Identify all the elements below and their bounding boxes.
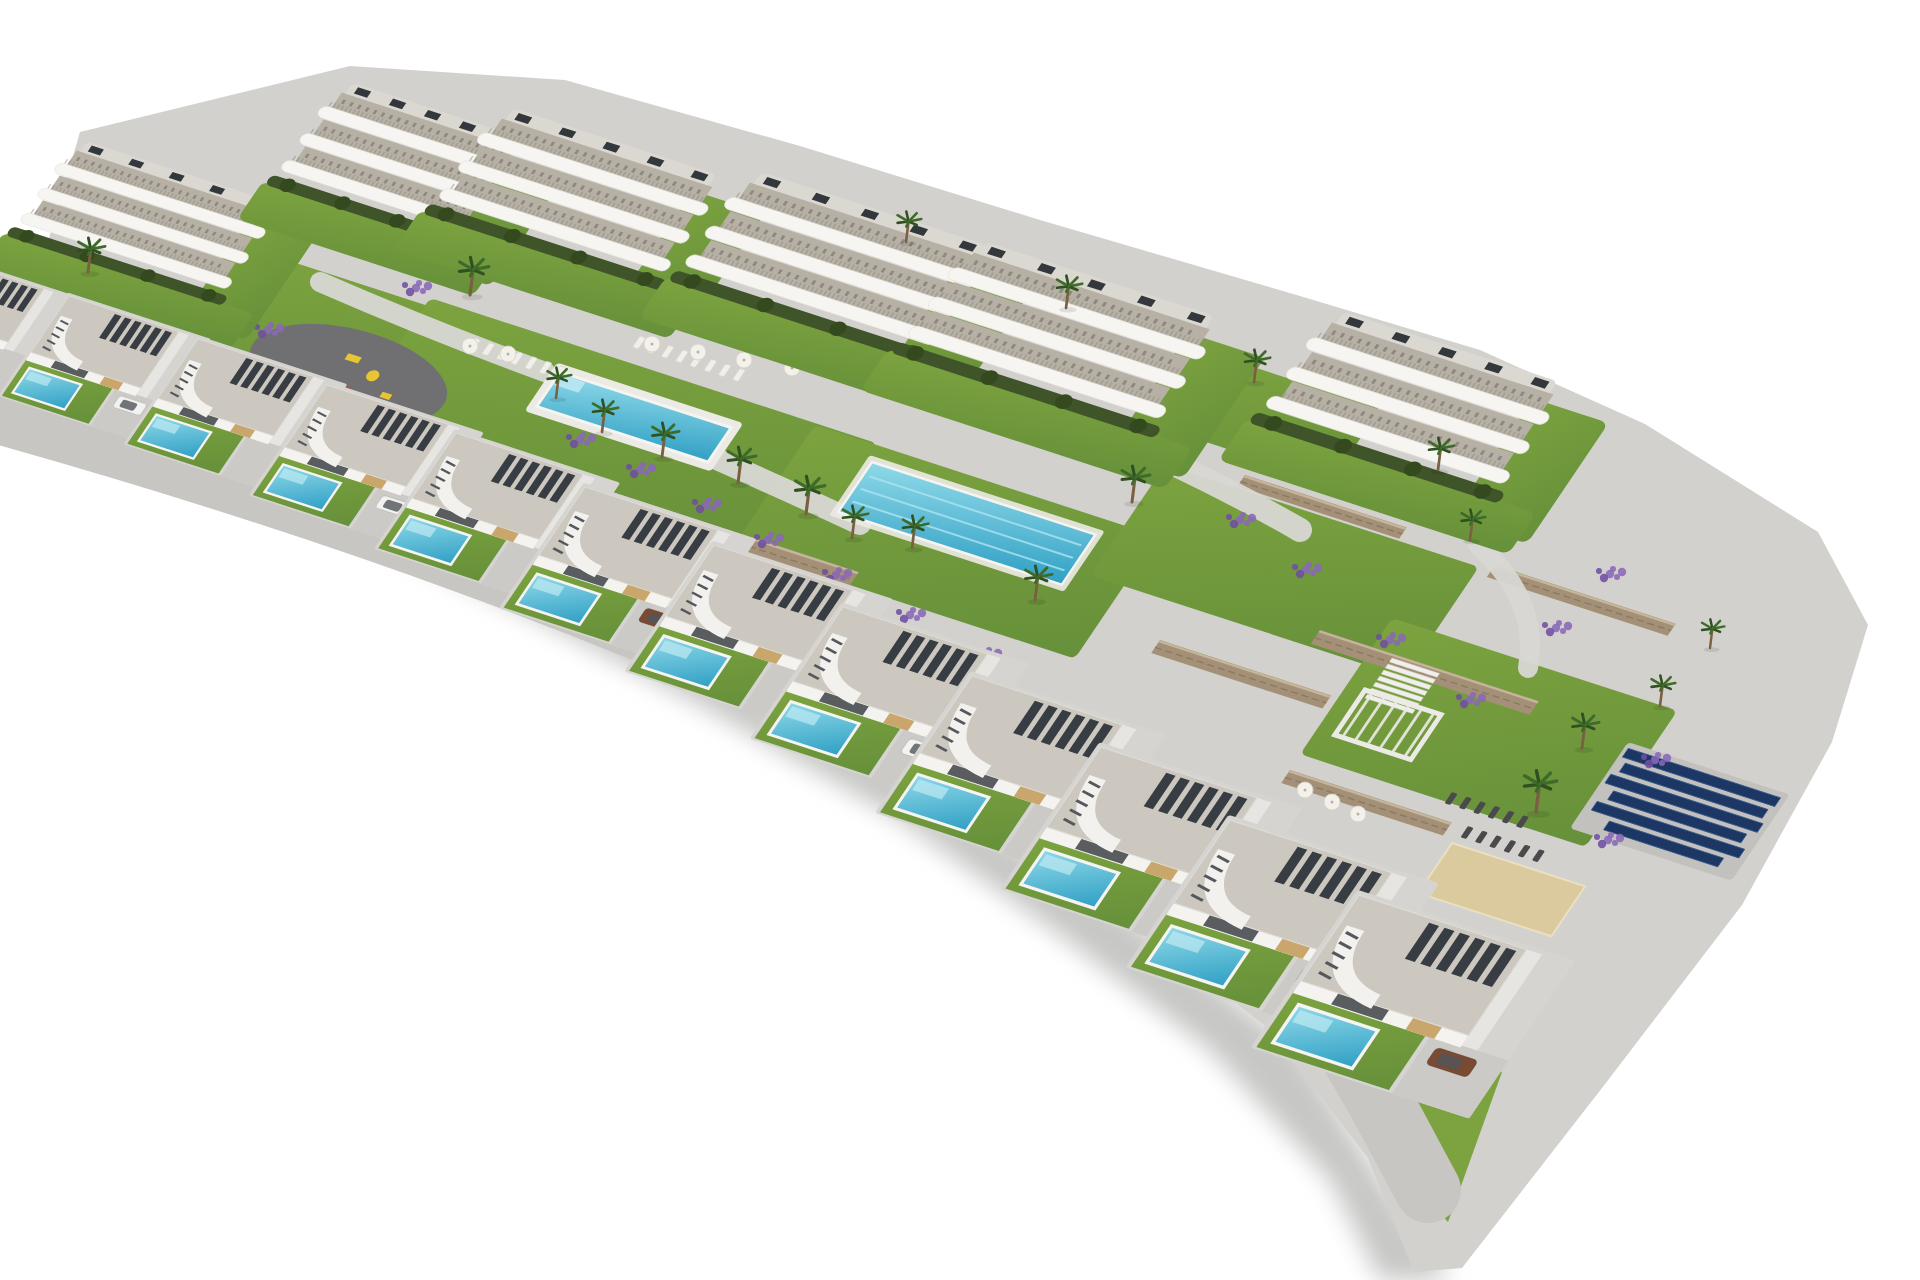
- lavender-clump: [776, 534, 784, 542]
- lavender-clump: [1546, 628, 1554, 636]
- lavender-clump: [1470, 692, 1476, 698]
- lavender-clump: [1230, 520, 1238, 528]
- palm-shadow: [1431, 469, 1449, 474]
- parasol-pole: [743, 359, 746, 362]
- lavender-clump: [1598, 840, 1606, 848]
- lavender-clump: [1248, 514, 1256, 522]
- lavender-clump: [1240, 512, 1246, 518]
- palm-shadow: [549, 397, 566, 402]
- parasol: [736, 352, 752, 368]
- palm-shadow: [899, 241, 916, 246]
- lavender-clump: [640, 462, 646, 468]
- parasol: [644, 336, 660, 352]
- lavender-clump: [822, 569, 828, 575]
- lavender-clump: [1398, 634, 1406, 642]
- lavender-clump: [1306, 562, 1312, 568]
- palm-shadow: [798, 513, 819, 519]
- lavender-clump: [844, 569, 852, 577]
- lavender-clump: [630, 470, 638, 478]
- lavender-clump: [1655, 752, 1661, 758]
- palm-shadow: [1574, 747, 1593, 753]
- lavender-clump: [1641, 754, 1647, 760]
- parasol-pole: [469, 345, 472, 348]
- parasol-pole: [1304, 789, 1307, 792]
- lavender-clump: [1608, 832, 1614, 838]
- lavender-clump: [692, 499, 698, 505]
- lavender-clump: [1663, 754, 1671, 762]
- palm-shadow: [462, 294, 483, 300]
- lavender-clump: [696, 505, 704, 513]
- lavender-clump: [1618, 568, 1626, 576]
- lavender-clump: [648, 464, 656, 472]
- lavender-clump: [566, 434, 572, 440]
- parasol: [690, 344, 706, 360]
- lavender-clump: [758, 540, 766, 548]
- palm-shadow: [1527, 811, 1550, 818]
- palm-shadow: [1027, 599, 1046, 605]
- palm-shadow: [1653, 705, 1670, 710]
- parasol: [1324, 794, 1340, 810]
- lavender-clump: [580, 432, 586, 438]
- lavender-clump: [406, 288, 414, 296]
- lavender-clump: [1542, 622, 1548, 628]
- lavender-clump: [416, 280, 422, 286]
- palm-shadow: [730, 482, 750, 488]
- palm-shadow: [1124, 501, 1144, 507]
- lavender-clump: [1596, 568, 1602, 574]
- palm-shadow: [80, 271, 99, 277]
- lavender-clump: [706, 497, 712, 503]
- lavender-clump: [402, 282, 408, 288]
- palm-shadow: [1704, 647, 1720, 652]
- lavender-clump: [1292, 564, 1298, 570]
- lavender-clump: [1478, 694, 1486, 702]
- lavender-clump: [1296, 570, 1304, 578]
- parasol: [462, 338, 478, 354]
- parasol-pole: [1331, 801, 1334, 804]
- palm-shadow: [654, 456, 673, 462]
- lavender-clump: [1564, 622, 1572, 630]
- palm-shadow: [1059, 307, 1077, 312]
- lavender-clump: [1616, 834, 1624, 842]
- lavender-clump: [1600, 574, 1608, 582]
- lavender-clump: [918, 609, 926, 617]
- parasol: [1297, 782, 1313, 798]
- palm-shadow: [1247, 381, 1265, 386]
- lavender-clump: [258, 330, 266, 338]
- parasol-pole: [697, 351, 700, 354]
- lavender-clump: [1376, 634, 1382, 640]
- lavender-clump: [268, 322, 274, 328]
- lavender-clump: [588, 434, 596, 442]
- residential-complex-render: [0, 0, 1920, 1280]
- lavender-clump: [1456, 694, 1462, 700]
- parasol-pole: [1357, 813, 1360, 816]
- parasol-pole: [507, 353, 510, 356]
- lavender-clump: [1645, 760, 1653, 768]
- lavender-clump: [626, 464, 632, 470]
- lavender-clump: [1460, 700, 1468, 708]
- lavender-clump: [896, 609, 902, 615]
- parasol: [1350, 806, 1366, 822]
- palm-shadow: [905, 547, 923, 552]
- lavender-clump: [570, 440, 578, 448]
- lavender-clump: [424, 282, 432, 290]
- lavender-clump: [1610, 566, 1616, 572]
- aerial-render-canvas: [0, 0, 1920, 1280]
- parasol: [500, 346, 516, 362]
- lavender-clump: [1380, 640, 1388, 648]
- lavender-clump: [1390, 632, 1396, 638]
- lavender-clump: [276, 324, 284, 332]
- lavender-clump: [768, 532, 774, 538]
- lavender-clump: [836, 567, 842, 573]
- lavender-clump: [1556, 620, 1562, 626]
- lavender-clump: [1594, 834, 1600, 840]
- palm-shadow: [1463, 539, 1480, 544]
- palm-shadow: [595, 431, 613, 436]
- parasol-pole: [651, 343, 654, 346]
- lavender-clump: [910, 607, 916, 613]
- lavender-clump: [1314, 564, 1322, 572]
- lavender-clump: [714, 499, 722, 507]
- lavender-clump: [1226, 514, 1232, 520]
- palm-shadow: [845, 537, 863, 542]
